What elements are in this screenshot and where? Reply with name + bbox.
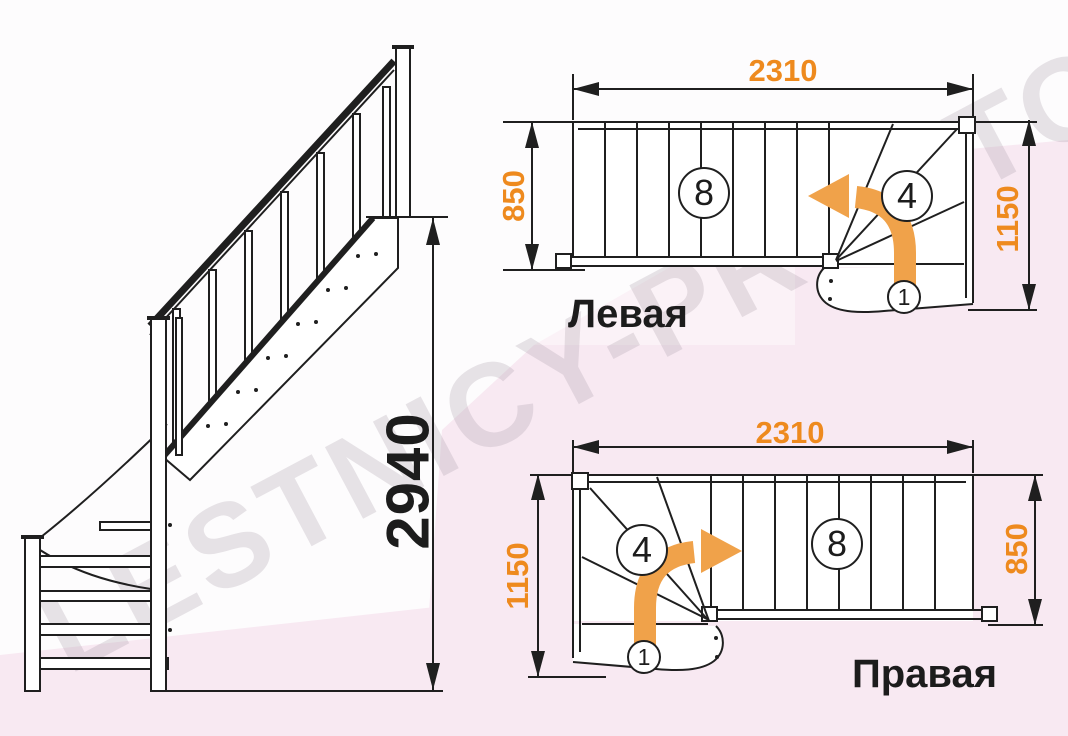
arrow-right-icon [947,82,973,96]
plan-right-straight-steps-badge: 8 [811,518,863,570]
technical-drawing [0,0,1068,736]
plan-left-width-dimension: 850 [496,170,532,222]
arrow-up-icon [426,218,440,245]
plan-right-first-step-badge: 1 [627,640,661,674]
side-elevation-view [21,46,448,691]
plan-left-length-dimension: 2310 [749,53,818,89]
lower-treads [25,522,168,669]
bottom-newel-post [151,318,166,691]
plan-right-width-dimension: 850 [999,523,1035,575]
plan-right-length-dimension: 2310 [756,415,825,451]
plan-left-winder-steps-badge: 4 [881,170,933,222]
plan-left-first-step-badge: 1 [887,280,921,314]
plan-view-right [528,440,1043,677]
plan-left-label: Левая [568,292,688,337]
arrow-down-icon [426,663,440,690]
arrow-right-icon [947,440,973,454]
curved-board-upper-edge [41,424,167,537]
arrow-left-icon [573,82,599,96]
plan-left-turn-width-dimension: 1150 [990,185,1026,252]
plan-right-label: Правая [852,652,997,697]
baluster-at-post [176,318,182,455]
start-post [25,537,40,691]
plan-view-left [503,74,1037,312]
arrow-left-icon [573,440,599,454]
top-newel-post [396,46,410,217]
total-height-dimension: 2940 [374,412,443,549]
plan-right-winder-steps-badge: 4 [616,524,668,576]
plan-left-straight-steps-badge: 8 [678,167,730,219]
stair-drawing-canvas: LESTNICY-PROSTO.RU [0,0,1068,736]
plan-right-turn-width-dimension: 1150 [500,542,536,609]
